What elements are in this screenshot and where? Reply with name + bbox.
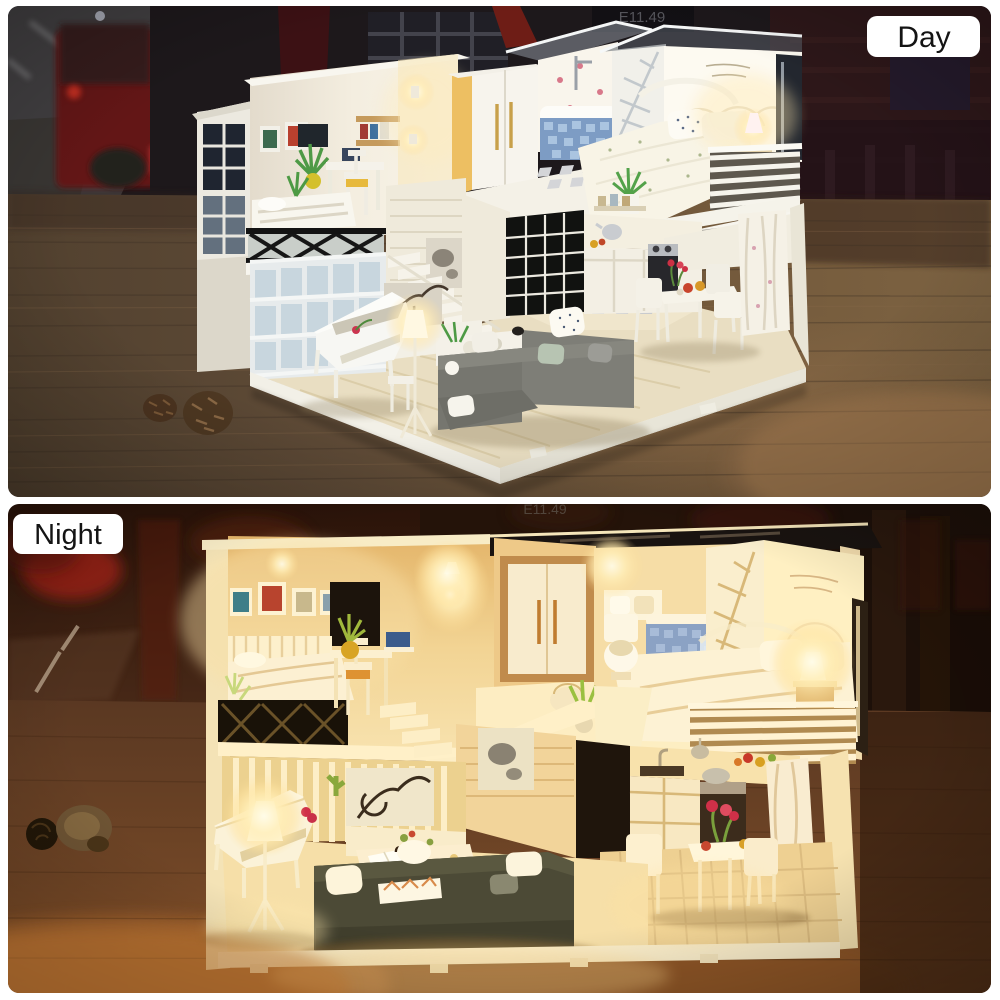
svg-text:Day: Day	[897, 21, 950, 54]
svg-text:Night: Night	[34, 519, 102, 551]
